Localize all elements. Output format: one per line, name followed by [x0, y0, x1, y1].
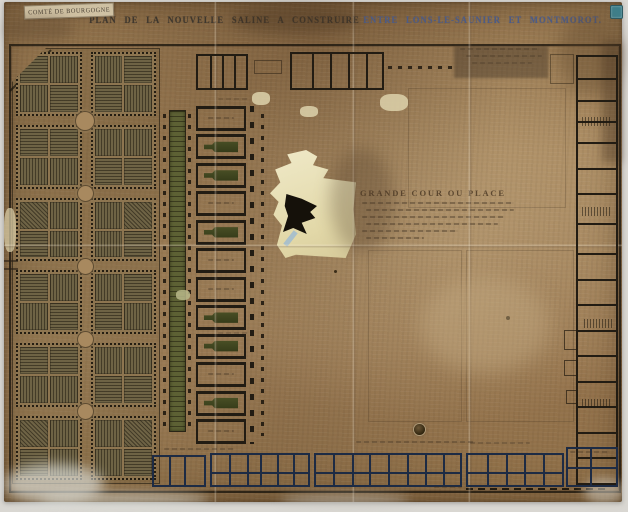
plot-hatch: [124, 303, 152, 330]
fold-crease-vertical: [468, 2, 472, 502]
plot-hatch: [50, 85, 78, 112]
plot-hatch: [50, 274, 78, 301]
garden-plot: [91, 270, 157, 334]
interior-wall: [388, 455, 390, 485]
illegible-label: [208, 117, 234, 119]
interior-wall: [212, 472, 308, 474]
interior-wall: [333, 455, 335, 485]
plot-hatch: [95, 347, 123, 374]
storeroom-hatch: [582, 117, 610, 126]
plot-hatch: [124, 449, 152, 476]
pan-house-compartment: [196, 391, 246, 416]
interior-wall: [210, 56, 212, 88]
interior-wall: [234, 56, 236, 88]
pan-house-compartment: [196, 163, 246, 188]
cartouche-script-line: [366, 223, 498, 225]
plot-hatch: [124, 202, 152, 229]
plot-hatch: [50, 420, 78, 447]
plot-hatch: [20, 202, 48, 229]
scale-bar: [466, 488, 606, 490]
cartouche-script-line: [366, 237, 424, 239]
post-row-dots: [388, 66, 458, 69]
stain-speck: [506, 316, 510, 320]
plot-hatch: [95, 274, 123, 301]
salt-pan-icon: [204, 397, 238, 410]
interior-wall: [348, 54, 350, 88]
interior-wall: [578, 304, 616, 306]
illegible-label: [208, 202, 234, 204]
pan-house-column: [196, 106, 246, 444]
illegible-script: [472, 62, 532, 64]
pencil-court-outline: [466, 250, 574, 422]
interior-wall: [578, 330, 616, 332]
interior-wall: [369, 455, 371, 485]
garden-plot: [16, 198, 82, 262]
tree-row-dots: [188, 114, 191, 426]
plot-hatch: [20, 129, 48, 156]
interior-wall: [293, 455, 295, 485]
interior-wall: [578, 253, 616, 255]
plot-hatch: [50, 449, 78, 476]
plot-hatch: [20, 420, 48, 447]
plot-hatch: [50, 303, 78, 330]
road-gate-line: [4, 260, 18, 262]
small-outbuilding: [254, 60, 282, 74]
plot-hatch: [95, 56, 123, 83]
plot-hatch: [124, 274, 152, 301]
bottom-building: [152, 455, 206, 487]
pan-house-compartment: [196, 248, 246, 273]
pan-house-compartment: [196, 334, 246, 359]
paper-abrasion: [300, 106, 318, 117]
interior-wall: [487, 455, 489, 485]
path-intersection-node: [77, 185, 94, 202]
photo-frame: { "banner": { "text": "COMTÉ DE BOURGOGN…: [0, 0, 628, 512]
illegible-script: [164, 448, 234, 450]
illegible-label: [208, 259, 234, 261]
plot-hatch: [50, 347, 78, 374]
plot-hatch: [124, 347, 152, 374]
interior-wall: [277, 455, 279, 485]
illegible-label: [208, 288, 234, 290]
plot-hatch: [95, 129, 123, 156]
path-intersection-node: [77, 403, 94, 420]
plan-document: PLAN DE LA NOUVELLE SALINE A CONSTRUIRE …: [4, 2, 622, 502]
interior-wall: [578, 100, 616, 102]
top-building: [196, 54, 248, 90]
right-building-range: [576, 55, 618, 485]
paper-abrasion: [380, 94, 408, 111]
road-gate-line: [4, 268, 18, 270]
plot-hatch: [124, 85, 152, 112]
interior-wall: [316, 472, 460, 474]
paper-abrasion: [252, 92, 270, 105]
paper-hole: [414, 424, 425, 435]
cartouche-script-lines: [360, 202, 524, 248]
illegible-script: [570, 451, 610, 453]
plot-hatch: [95, 303, 123, 330]
storeroom-hatch: [584, 319, 612, 328]
garden-plot: [16, 416, 82, 480]
cartouche-heading: GRANDE COUR OU PLACE: [360, 188, 524, 198]
plot-hatch: [95, 376, 123, 403]
interior-wall: [578, 168, 616, 170]
interior-wall: [578, 223, 616, 225]
illegible-script: [356, 441, 476, 443]
pan-house-compartment: [196, 134, 246, 159]
plot-hatch: [50, 376, 78, 403]
plot-hatch: [124, 420, 152, 447]
interior-wall: [578, 432, 616, 434]
illegible-script: [434, 486, 462, 488]
plot-hatch: [95, 420, 123, 447]
grande-cour-cartouche: GRANDE COUR OU PLACE: [360, 188, 524, 250]
garden-plot: [91, 125, 157, 189]
salt-pan-icon: [204, 169, 238, 182]
annex-room: [564, 360, 578, 376]
plan-title-part1: PLAN DE LA NOUVELLE SALINE A CONSTRUIRE: [89, 16, 360, 26]
garden-plot: [91, 416, 157, 480]
region-banner-label: COMTÉ DE BOURGOGNE: [28, 6, 110, 16]
colonnade-dots: [261, 114, 264, 436]
interior-wall: [578, 381, 616, 383]
interior-wall: [578, 142, 616, 144]
pan-house-compartment: [196, 362, 246, 387]
interior-wall: [184, 457, 186, 485]
garden-plot: [16, 343, 82, 407]
plot-hatch: [20, 376, 48, 403]
plot-hatch: [95, 158, 123, 185]
path-intersection-node: [77, 258, 94, 275]
garden-plot: [91, 52, 157, 116]
colonnade-dots: [250, 106, 254, 444]
bottom-building: [314, 453, 462, 487]
storeroom-hatch: [582, 399, 610, 408]
corner-sticker: [610, 5, 623, 19]
plot-hatch: [20, 303, 48, 330]
plot-hatch: [20, 85, 48, 112]
plot-hatch: [124, 129, 152, 156]
illegible-script: [470, 442, 530, 444]
illegible-label: [208, 373, 234, 375]
interior-wall: [578, 355, 616, 357]
pan-house-compartment: [196, 106, 246, 131]
interior-wall: [568, 467, 616, 469]
illegible-label: [208, 430, 234, 432]
illegible-script: [460, 48, 540, 50]
plot-hatch: [20, 274, 48, 301]
interior-wall: [578, 78, 616, 80]
salt-pan-icon: [204, 226, 238, 239]
stain-dark: [4, 16, 74, 42]
interior-wall: [260, 455, 262, 485]
illegible-script: [218, 332, 248, 334]
pan-house-compartment: [196, 277, 246, 302]
garden-plot: [16, 270, 82, 334]
pan-house-compartment: [196, 305, 246, 330]
plot-hatch: [95, 449, 123, 476]
annex-room: [564, 330, 578, 350]
plan-title: PLAN DE LA NOUVELLE SALINE A CONSTRUIRE …: [89, 10, 579, 26]
plot-hatch: [95, 85, 123, 112]
interior-wall: [468, 472, 562, 474]
plot-hatch: [124, 56, 152, 83]
plot-hatch: [50, 158, 78, 185]
cartouche-script-line: [362, 216, 504, 218]
pan-house-compartment: [196, 419, 246, 444]
tree-row-dots: [163, 114, 166, 426]
garden-plot: [91, 198, 157, 262]
plan-title-part2: ENTRE LONS-LE-SAUNIER ET MONTMOROT.: [363, 16, 602, 26]
garden-plot: [91, 343, 157, 407]
stain-speck: [334, 270, 337, 273]
cartouche-script-line: [366, 209, 514, 211]
interior-wall: [312, 54, 314, 88]
interior-wall: [222, 56, 224, 88]
pencil-court-outline: [368, 250, 462, 422]
plot-hatch: [124, 376, 152, 403]
path-intersection-node: [77, 331, 94, 348]
interior-wall: [524, 455, 526, 485]
pan-house-compartment: [196, 191, 246, 216]
pan-house-compartment: [196, 220, 246, 245]
cartouche-script-line: [362, 230, 458, 232]
fold-crease-horizontal: [4, 244, 622, 248]
interior-wall: [443, 455, 445, 485]
salt-pan-icon: [204, 311, 238, 324]
interior-wall: [578, 193, 616, 195]
interior-wall: [407, 455, 409, 485]
top-building: [290, 52, 384, 90]
garden-plot: [16, 125, 82, 189]
bottom-building: [210, 453, 310, 487]
bottom-building: [466, 453, 564, 487]
interior-wall: [366, 54, 368, 88]
interior-wall: [330, 54, 332, 88]
plot-hatch: [124, 158, 152, 185]
garden-quarter: [12, 48, 160, 484]
salt-pan-icon: [204, 140, 238, 153]
graduation-canal: [169, 110, 186, 432]
illegible-script: [466, 55, 542, 57]
interior-wall: [506, 455, 508, 485]
plot-hatch: [20, 449, 48, 476]
plot-hatch: [50, 56, 78, 83]
paper-abrasion: [176, 290, 190, 300]
storeroom-hatch: [582, 207, 610, 216]
interior-wall: [543, 455, 545, 485]
interior-wall: [352, 455, 354, 485]
small-outbuilding: [550, 54, 574, 84]
interior-wall: [247, 455, 249, 485]
interior-wall: [578, 279, 616, 281]
plot-hatch: [95, 202, 123, 229]
interior-wall: [425, 455, 427, 485]
plot-hatch: [50, 129, 78, 156]
plot-hatch: [20, 158, 48, 185]
interior-wall: [169, 457, 171, 485]
interior-wall: [229, 455, 231, 485]
plot-hatch: [20, 347, 48, 374]
cartouche-script-line: [362, 202, 514, 204]
annex-room: [566, 390, 578, 404]
stain-white: [280, 494, 410, 506]
illegible-script: [218, 98, 248, 100]
salt-pan-icon: [204, 340, 238, 353]
stain-white: [40, 492, 210, 506]
bottom-building: [566, 447, 618, 487]
plot-hatch: [50, 202, 78, 229]
